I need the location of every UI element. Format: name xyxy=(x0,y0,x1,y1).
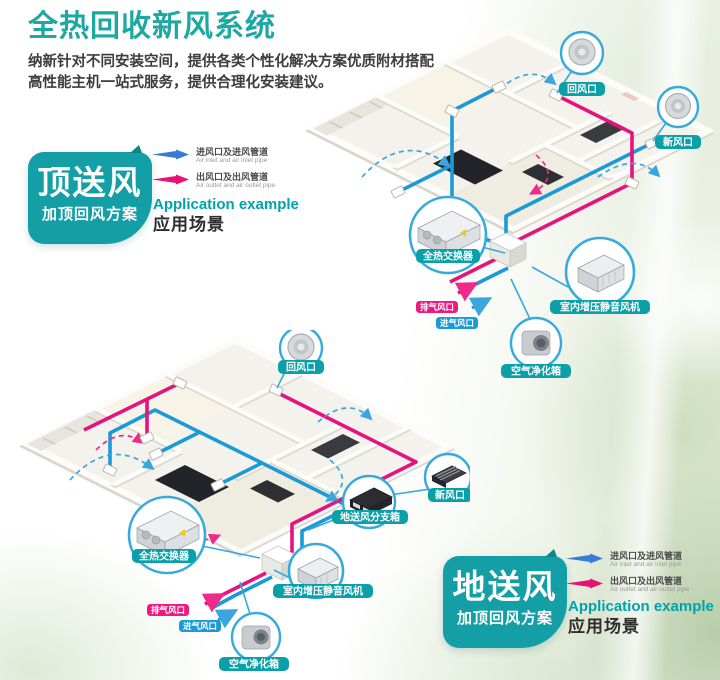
booster-fan-label: 室内增压静音风机 xyxy=(560,301,640,314)
legend-inlet-row: 进风口及进风管道 Air inlet and air inlet pipe xyxy=(566,551,689,569)
application-example-en: Application example xyxy=(153,196,299,214)
floor-supply-box-label: 地送风分支箱 xyxy=(340,511,400,524)
booster-fan-label: 室内增压静音风机 xyxy=(283,585,363,598)
callout-return-vent: 回风口 xyxy=(557,32,605,96)
scheme-card-top-supply: 顶送风 加顶回风方案 xyxy=(28,152,152,244)
exhaust-intake-badges-bottom: 排气风口 进气风口 xyxy=(147,596,233,632)
air-purifier-icon xyxy=(242,626,270,649)
page-title: 全热回收新风系统 xyxy=(28,10,498,44)
legend-outlet-row: 出风口及出风管道 Air outlet and air outlet pipe xyxy=(566,576,689,594)
scheme-subtitle: 加顶回风方案 xyxy=(28,203,152,224)
inlet-legend-en: Air inlet and air inlet pipe xyxy=(610,561,682,569)
outlet-legend-cn: 出风口及出风管道 xyxy=(196,172,275,182)
application-caption-bottom: Application example 应用场景 xyxy=(568,598,714,638)
legend-inlet-row: 进风口及进风管道 Air inlet and air inlet pipe xyxy=(152,147,275,165)
callout-air-purifier: 空气净化箱 xyxy=(501,279,571,378)
air-purifier-label: 空气净化箱 xyxy=(229,658,279,671)
inlet-arrow-icon xyxy=(566,553,604,564)
inlet-legend-cn: 进风口及进风管道 xyxy=(610,551,682,561)
legend-top: 进风口及进风管道 Air inlet and air inlet pipe 出风… xyxy=(152,147,275,197)
outlet-arrow-icon xyxy=(152,174,190,185)
application-example-cn: 应用场景 xyxy=(153,214,299,236)
fresh-vent-label: 新风口 xyxy=(663,136,693,149)
scheme-card-floor-supply: 地送风 加顶回风方案 xyxy=(443,556,567,648)
scheme-name: 地送风 xyxy=(443,569,567,605)
return-vent-label: 回风口 xyxy=(567,84,597,96)
callout-fresh-vent: 新风口 xyxy=(653,87,701,149)
scheme-subtitle: 加顶回风方案 xyxy=(443,607,567,628)
inlet-legend-en: Air inlet and air inlet pipe xyxy=(196,157,268,165)
scheme-name: 顶送风 xyxy=(28,165,152,201)
return-vent-label: 回风口 xyxy=(286,362,316,374)
inlet-arrow-icon xyxy=(152,149,190,160)
inlet-legend-cn: 进风口及进风管道 xyxy=(196,147,268,157)
outlet-legend-en: Air outlet and air outlet pipe xyxy=(610,586,689,594)
application-caption-top: Application example 应用场景 xyxy=(153,196,299,236)
heat-exchanger-label: 全热交换器 xyxy=(422,250,474,263)
outlet-legend-en: Air outlet and air outlet pipe xyxy=(196,182,275,190)
heat-exchanger-label: 全热交换器 xyxy=(138,550,190,563)
air-purifier-label: 空气净化箱 xyxy=(511,365,561,378)
application-example-cn: 应用场景 xyxy=(568,616,714,638)
air-purifier-icon xyxy=(522,331,550,355)
callout-booster-fan: 室内增压静音风机 xyxy=(532,238,650,314)
application-example-en: Application example xyxy=(568,598,714,616)
header: 全热回收新风系统 纳新针对不同安装空间，提供各类个性化解决方案优质附材搭配 高性… xyxy=(28,10,498,94)
intake-vent-label: 进气风口 xyxy=(440,318,474,328)
page: 全热回收新风系统 纳新针对不同安装空间，提供各类个性化解决方案优质附材搭配 高性… xyxy=(0,0,720,680)
outlet-legend-cn: 出风口及出风管道 xyxy=(610,576,689,586)
outlet-arrow-icon xyxy=(566,578,604,589)
page-description: 纳新针对不同安装空间，提供各类个性化解决方案优质附材搭配 高性能主机一站式服务，… xyxy=(28,52,498,94)
intake-vent-label: 进气风口 xyxy=(183,621,217,631)
diagram-floor-supply: 回风口 新风口 xyxy=(0,330,470,680)
description-line-1: 纳新针对不同安装空间，提供各类个性化解决方案优质附材搭配 xyxy=(28,54,434,70)
description-line-2: 高性能主机一站式服务，提供合理化安装建议。 xyxy=(28,75,333,91)
legend-bottom: 进风口及进风管道 Air inlet and air inlet pipe 出风… xyxy=(566,551,689,601)
exhaust-vent-label: 排气风口 xyxy=(151,605,185,615)
exhaust-intake-badges-top: 排气风口 进气风口 xyxy=(416,285,487,329)
exhaust-vent-label: 排气风口 xyxy=(420,302,454,312)
legend-outlet-row: 出风口及出风管道 Air outlet and air outlet pipe xyxy=(152,172,275,190)
fresh-vent-label: 新风口 xyxy=(435,489,465,502)
